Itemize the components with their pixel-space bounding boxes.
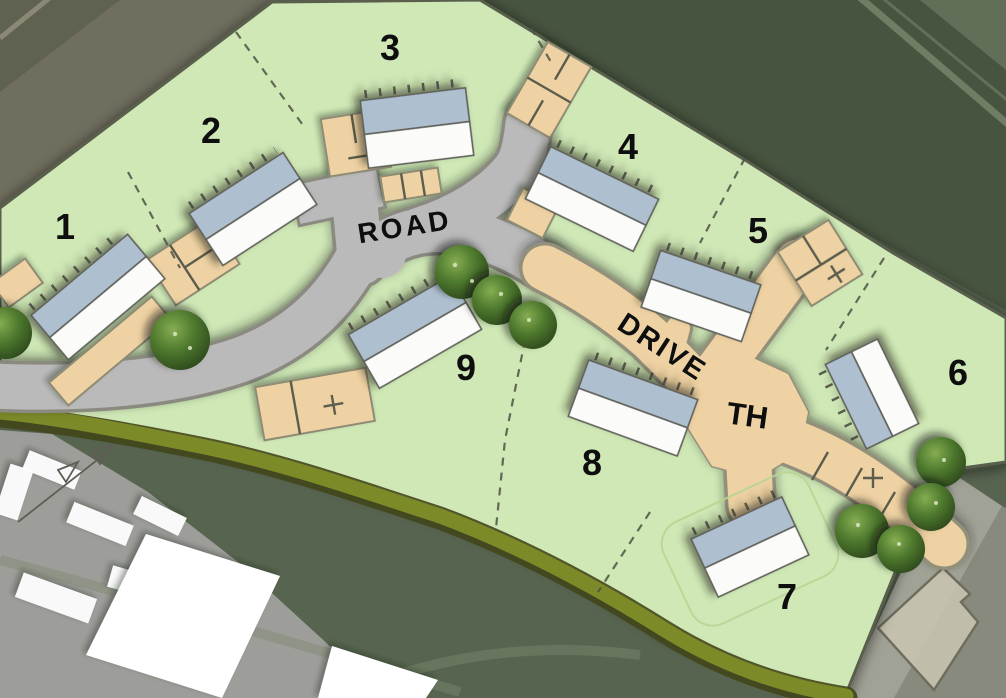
- plot-label-2: 2: [201, 110, 221, 151]
- plot-label-4: 4: [618, 126, 638, 167]
- plot-label-5: 5: [748, 210, 768, 251]
- tree: [150, 310, 210, 370]
- plot-label-1: 1: [55, 206, 75, 247]
- tree: [877, 525, 925, 573]
- plot-label-6: 6: [948, 352, 968, 393]
- site-plan-drawing: 1 2 3 4 5 6 7 8 9 ROAD DRIVE TH: [0, 0, 1006, 698]
- plot-label-9: 9: [456, 347, 476, 388]
- plot-label-8: 8: [582, 442, 602, 483]
- turning-head-label: TH: [725, 395, 771, 435]
- tree: [907, 483, 955, 531]
- plot-label-7: 7: [777, 576, 797, 617]
- plot-label-3: 3: [380, 27, 400, 68]
- tree: [509, 301, 557, 349]
- tree: [916, 437, 966, 487]
- site-plan-canvas: 1 2 3 4 5 6 7 8 9 ROAD DRIVE TH: [0, 0, 1006, 698]
